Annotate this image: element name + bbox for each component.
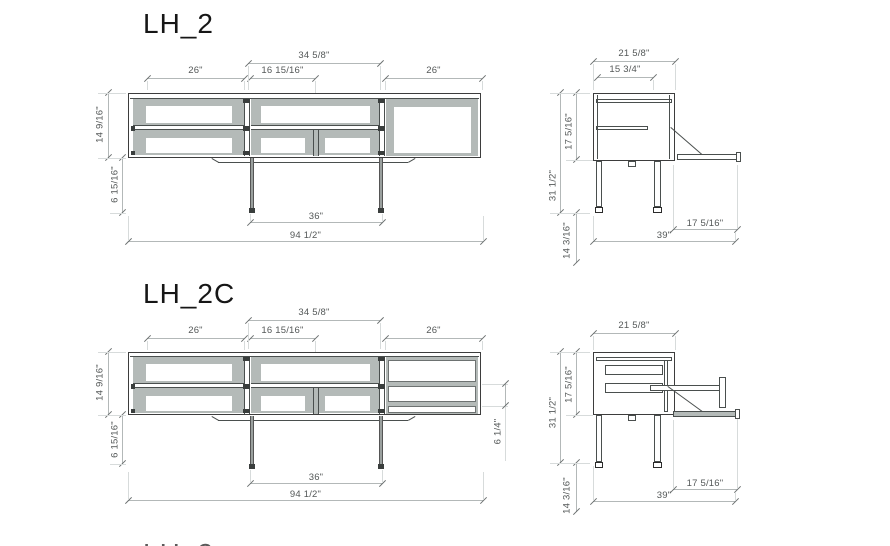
dim-line xyxy=(593,61,675,62)
bay-mid-lower-right-opening xyxy=(325,396,370,411)
divider-fitting xyxy=(378,151,385,155)
dim-line xyxy=(593,241,735,242)
dim-label: 14 9/16" xyxy=(95,353,106,413)
extension-line xyxy=(98,158,126,159)
extension-line xyxy=(550,352,590,353)
dim-line xyxy=(560,352,561,463)
wall-fitting xyxy=(131,126,135,131)
dim-label: 31 1/2" xyxy=(548,156,559,216)
extension-line xyxy=(98,93,126,94)
extension-line xyxy=(593,216,594,241)
bay-mid-upper-opening xyxy=(261,106,370,123)
extension-line xyxy=(675,336,676,350)
dim-line xyxy=(560,93,561,213)
divider-fitting xyxy=(243,126,250,131)
leg-foot xyxy=(653,207,662,213)
cropped-next-title: LH_2 xyxy=(143,538,214,546)
extension-line xyxy=(593,64,594,90)
dim-line xyxy=(248,63,380,64)
base-recess-slant xyxy=(408,158,415,163)
side-leg xyxy=(596,161,602,207)
extension-line xyxy=(482,81,483,90)
extension-line xyxy=(735,232,736,241)
dim-label: 94 1/2" xyxy=(128,230,483,241)
dim-line xyxy=(147,338,244,339)
extension-line xyxy=(244,341,245,350)
bay-mid-upper-opening xyxy=(261,364,370,381)
dim-line xyxy=(248,320,380,321)
dim-label: 16 15/16" xyxy=(250,325,315,336)
extension-line xyxy=(385,81,386,90)
pulled-drawer-front xyxy=(719,377,726,408)
dim-line xyxy=(147,78,244,79)
flap-edge-cap xyxy=(736,152,741,162)
extension-line xyxy=(566,160,593,161)
extension-line xyxy=(593,336,594,350)
dim-label: 36" xyxy=(250,472,382,483)
side-leg xyxy=(654,161,661,207)
extension-line xyxy=(382,470,383,483)
dim-line xyxy=(250,78,315,79)
dim-label: 34 5/8" xyxy=(248,50,380,61)
extension-line xyxy=(244,81,245,90)
divider-fitting xyxy=(378,99,385,103)
dim-line xyxy=(250,222,382,223)
front-leg xyxy=(379,158,383,208)
dim-line xyxy=(576,93,577,160)
side-leg xyxy=(596,415,602,462)
bay-mid-lower-divider xyxy=(313,130,319,156)
extension-line xyxy=(98,352,126,353)
divider-fitting xyxy=(243,384,250,389)
dim-line xyxy=(505,384,506,406)
dim-line xyxy=(122,158,123,213)
bay-left-lower-opening xyxy=(146,138,232,153)
dim-line xyxy=(385,78,482,79)
bay-left-upper-opening xyxy=(146,364,232,381)
extension-line xyxy=(315,81,316,93)
drawer-front-3 xyxy=(388,406,476,413)
dim-line xyxy=(385,338,482,339)
extension-line xyxy=(385,341,386,350)
extension-line xyxy=(550,213,590,214)
dim-label: 6 15/16" xyxy=(110,155,121,215)
bay-mid-lower-left-opening xyxy=(261,138,305,153)
divider-fitting xyxy=(243,99,250,103)
extension-line xyxy=(248,66,249,90)
dim-label: 31 1/2" xyxy=(548,383,559,443)
dim-label: 26" xyxy=(385,65,482,76)
dim-line xyxy=(593,501,735,502)
bay-mid-lower-divider xyxy=(313,388,319,414)
leg-stretcher xyxy=(628,415,636,421)
dim-line xyxy=(128,241,483,242)
extension-line xyxy=(550,93,590,94)
drawer-box-profile xyxy=(605,365,663,375)
extension-line xyxy=(380,323,381,349)
divider-fitting xyxy=(378,384,385,389)
drawer-front-2 xyxy=(388,386,476,402)
bay-left-shelf xyxy=(133,383,244,388)
extension-line xyxy=(110,213,126,214)
model-title-lh2c: LH_2C xyxy=(143,278,235,310)
bay-left-upper-opening xyxy=(146,106,232,123)
dim-label: 94 1/2" xyxy=(128,489,483,500)
dim-label: 34 5/8" xyxy=(248,307,380,318)
divider-fitting xyxy=(243,357,250,361)
front-leg xyxy=(250,416,254,464)
flap-stay-line xyxy=(670,127,702,155)
dim-line xyxy=(128,500,483,501)
extension-line xyxy=(110,464,126,465)
side-inner-wall xyxy=(597,95,598,159)
dim-line xyxy=(108,352,109,415)
extension-line xyxy=(505,406,506,461)
dim-label: 17 5/16" xyxy=(564,102,575,162)
extension-line xyxy=(735,492,736,501)
divider-fitting xyxy=(378,357,385,361)
bay-left-shelf xyxy=(133,125,244,130)
dim-label: 6 1/4" xyxy=(493,402,504,462)
extension-line xyxy=(737,165,738,229)
extension-line xyxy=(382,214,383,222)
dim-label: 39" xyxy=(593,490,735,501)
wall-fitting xyxy=(131,384,135,389)
open-flap xyxy=(677,154,738,160)
bay-mid-lower-right-opening xyxy=(325,138,370,153)
leg-foot xyxy=(653,462,662,468)
dim-line xyxy=(576,352,577,415)
pulled-drawer-rail xyxy=(650,385,720,391)
leg-foot xyxy=(378,464,384,469)
side-top-panel xyxy=(596,99,672,103)
dim-label: 21 5/8" xyxy=(593,320,675,331)
dim-label: 17 5/16" xyxy=(673,218,737,229)
bay-left-lower-opening xyxy=(146,396,232,411)
front-leg xyxy=(379,416,383,464)
extension-line xyxy=(248,323,249,349)
leg-stretcher xyxy=(628,161,636,167)
dim-line xyxy=(250,338,315,339)
base-recess-slant xyxy=(212,158,219,163)
dim-line xyxy=(108,93,109,158)
dim-label: 39" xyxy=(593,230,735,241)
base-recess-slant xyxy=(408,416,415,421)
leg-foot xyxy=(249,464,255,469)
dim-line xyxy=(250,483,382,484)
extension-line xyxy=(566,415,593,416)
extension-line xyxy=(482,341,483,350)
dim-label: 26" xyxy=(147,65,244,76)
dim-line xyxy=(597,77,653,78)
dim-line xyxy=(576,463,577,512)
divider-fitting xyxy=(243,151,250,155)
dim-label: 14 3/16" xyxy=(562,211,573,271)
dim-label: 14 3/16" xyxy=(562,466,573,526)
divider-fitting xyxy=(243,409,250,413)
dim-line xyxy=(593,333,675,334)
side-leg xyxy=(654,415,661,462)
extension-line xyxy=(483,472,484,500)
dim-label: 36" xyxy=(250,211,382,222)
side-shelf xyxy=(596,126,648,130)
dim-label: 26" xyxy=(385,325,482,336)
extension-line xyxy=(147,341,148,350)
dim-line xyxy=(576,213,577,263)
divider-fitting xyxy=(378,126,385,131)
extension-line xyxy=(673,165,674,229)
open-flap xyxy=(673,411,737,417)
extension-line xyxy=(737,419,738,489)
dim-line xyxy=(122,415,123,464)
dim-label: 26" xyxy=(147,325,244,336)
side-top-panel xyxy=(596,357,672,361)
dim-label: 16 15/16" xyxy=(250,65,315,76)
extension-line xyxy=(128,472,129,500)
extension-line xyxy=(673,420,674,489)
extension-line xyxy=(98,415,126,416)
extension-line xyxy=(653,80,654,90)
extension-line xyxy=(483,216,484,241)
bay-right-opening xyxy=(394,107,471,153)
dim-label: 21 5/8" xyxy=(593,48,675,59)
base-recess-slant xyxy=(212,416,219,421)
extension-line xyxy=(675,64,676,90)
drawing-sheet: LH_2 34 5/8" 26" 16 15/16" 26" 14 9/16 xyxy=(0,0,890,546)
wall-fitting xyxy=(131,151,135,155)
dim-label: 15 3/4" xyxy=(597,64,653,75)
dim-label: 6 15/16" xyxy=(110,410,121,470)
extension-line xyxy=(315,341,316,352)
dim-label: 14 9/16" xyxy=(95,95,106,155)
dim-label: 17 5/16" xyxy=(673,478,737,489)
leg-foot xyxy=(595,207,603,213)
extension-line xyxy=(128,216,129,241)
extension-line xyxy=(550,463,590,464)
extension-line xyxy=(147,81,148,90)
extension-line xyxy=(380,66,381,90)
extension-line xyxy=(250,470,251,483)
extension-line xyxy=(593,466,594,501)
wall-fitting xyxy=(131,409,135,413)
leg-foot xyxy=(595,462,603,468)
dim-label: 17 5/16" xyxy=(564,355,575,415)
drawer-front-1 xyxy=(388,360,476,382)
divider-fitting xyxy=(378,409,385,413)
model-title-lh2: LH_2 xyxy=(143,8,214,40)
flap-edge-cap xyxy=(735,409,740,419)
front-leg xyxy=(250,158,254,208)
extension-line xyxy=(250,214,251,222)
bay-mid-lower-left-opening xyxy=(261,396,305,411)
